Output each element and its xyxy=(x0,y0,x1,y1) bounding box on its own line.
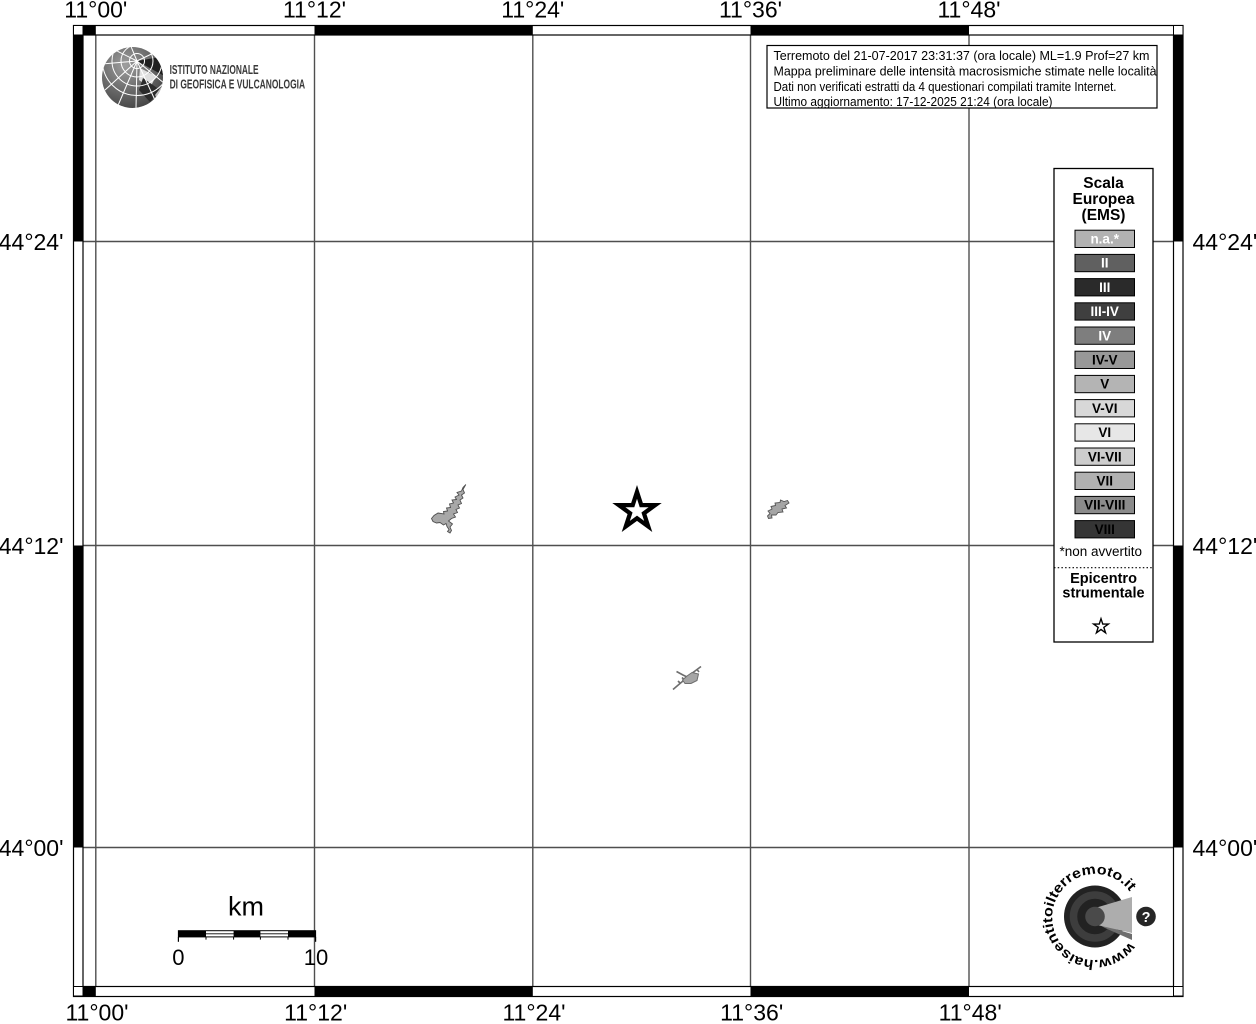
svg-text:10: 10 xyxy=(304,945,328,970)
svg-text:44°00': 44°00' xyxy=(0,835,64,861)
svg-text:Dati non verificati estratti d: Dati non verificati estratti da 4 questi… xyxy=(774,79,1117,94)
svg-text:11°36': 11°36' xyxy=(719,0,782,23)
svg-text:VII: VII xyxy=(1096,474,1113,489)
svg-text:Europea: Europea xyxy=(1072,191,1134,208)
svg-text:11°48': 11°48' xyxy=(937,0,1000,23)
svg-text:44°24': 44°24' xyxy=(0,229,64,255)
svg-text:44°12': 44°12' xyxy=(0,533,64,559)
svg-text:?: ? xyxy=(1142,910,1151,926)
svg-text:11°12': 11°12' xyxy=(284,1000,347,1024)
svg-text:Mappa preliminare delle intens: Mappa preliminare delle intensità macros… xyxy=(774,64,1158,79)
svg-text:n.a.*: n.a.* xyxy=(1090,232,1119,247)
svg-text:ISTITUTO NAZIONALE: ISTITUTO NAZIONALE xyxy=(170,62,259,77)
svg-text:DI GEOFISICA E VULCANOLOGIA: DI GEOFISICA E VULCANOLOGIA xyxy=(170,77,306,92)
svg-text:11°00': 11°00' xyxy=(64,0,127,23)
svg-text:IV-V: IV-V xyxy=(1092,353,1118,368)
svg-text:44°12': 44°12' xyxy=(1193,533,1256,559)
svg-text:IV: IV xyxy=(1098,328,1111,343)
svg-text:VI-VII: VI-VII xyxy=(1088,449,1122,464)
svg-text:VIII: VIII xyxy=(1095,522,1115,537)
svg-text:VI: VI xyxy=(1098,425,1111,440)
svg-text:III-IV: III-IV xyxy=(1090,304,1119,319)
svg-text:0: 0 xyxy=(172,945,184,970)
svg-text:*non avvertito: *non avvertito xyxy=(1060,544,1143,559)
svg-text:11°36': 11°36' xyxy=(720,1000,783,1024)
svg-text:11°24': 11°24' xyxy=(502,1000,565,1024)
svg-text:km: km xyxy=(228,892,264,922)
svg-text:11°48': 11°48' xyxy=(939,1000,1002,1024)
svg-text:VII-VIII: VII-VIII xyxy=(1084,498,1125,513)
svg-text:11°00': 11°00' xyxy=(65,1000,128,1024)
svg-text:44°00': 44°00' xyxy=(1193,835,1256,861)
svg-text:III: III xyxy=(1099,280,1110,295)
svg-text:44°24': 44°24' xyxy=(1193,229,1256,255)
svg-text:11°12': 11°12' xyxy=(283,0,346,23)
svg-text:V-VI: V-VI xyxy=(1092,401,1118,416)
svg-text:II: II xyxy=(1101,256,1109,271)
svg-text:strumentale: strumentale xyxy=(1062,586,1144,602)
svg-text:Ultimo aggiornamento: 17-12-20: Ultimo aggiornamento: 17-12-2025 21:24 (… xyxy=(774,94,1053,109)
svg-text:Scala: Scala xyxy=(1083,175,1124,192)
svg-text:(EMS): (EMS) xyxy=(1082,207,1126,224)
svg-text:11°24': 11°24' xyxy=(501,0,564,23)
svg-text:V: V xyxy=(1100,377,1109,392)
svg-text:Terremoto del 21-07-2017 23:31: Terremoto del 21-07-2017 23:31:37 (ora l… xyxy=(774,48,1150,63)
